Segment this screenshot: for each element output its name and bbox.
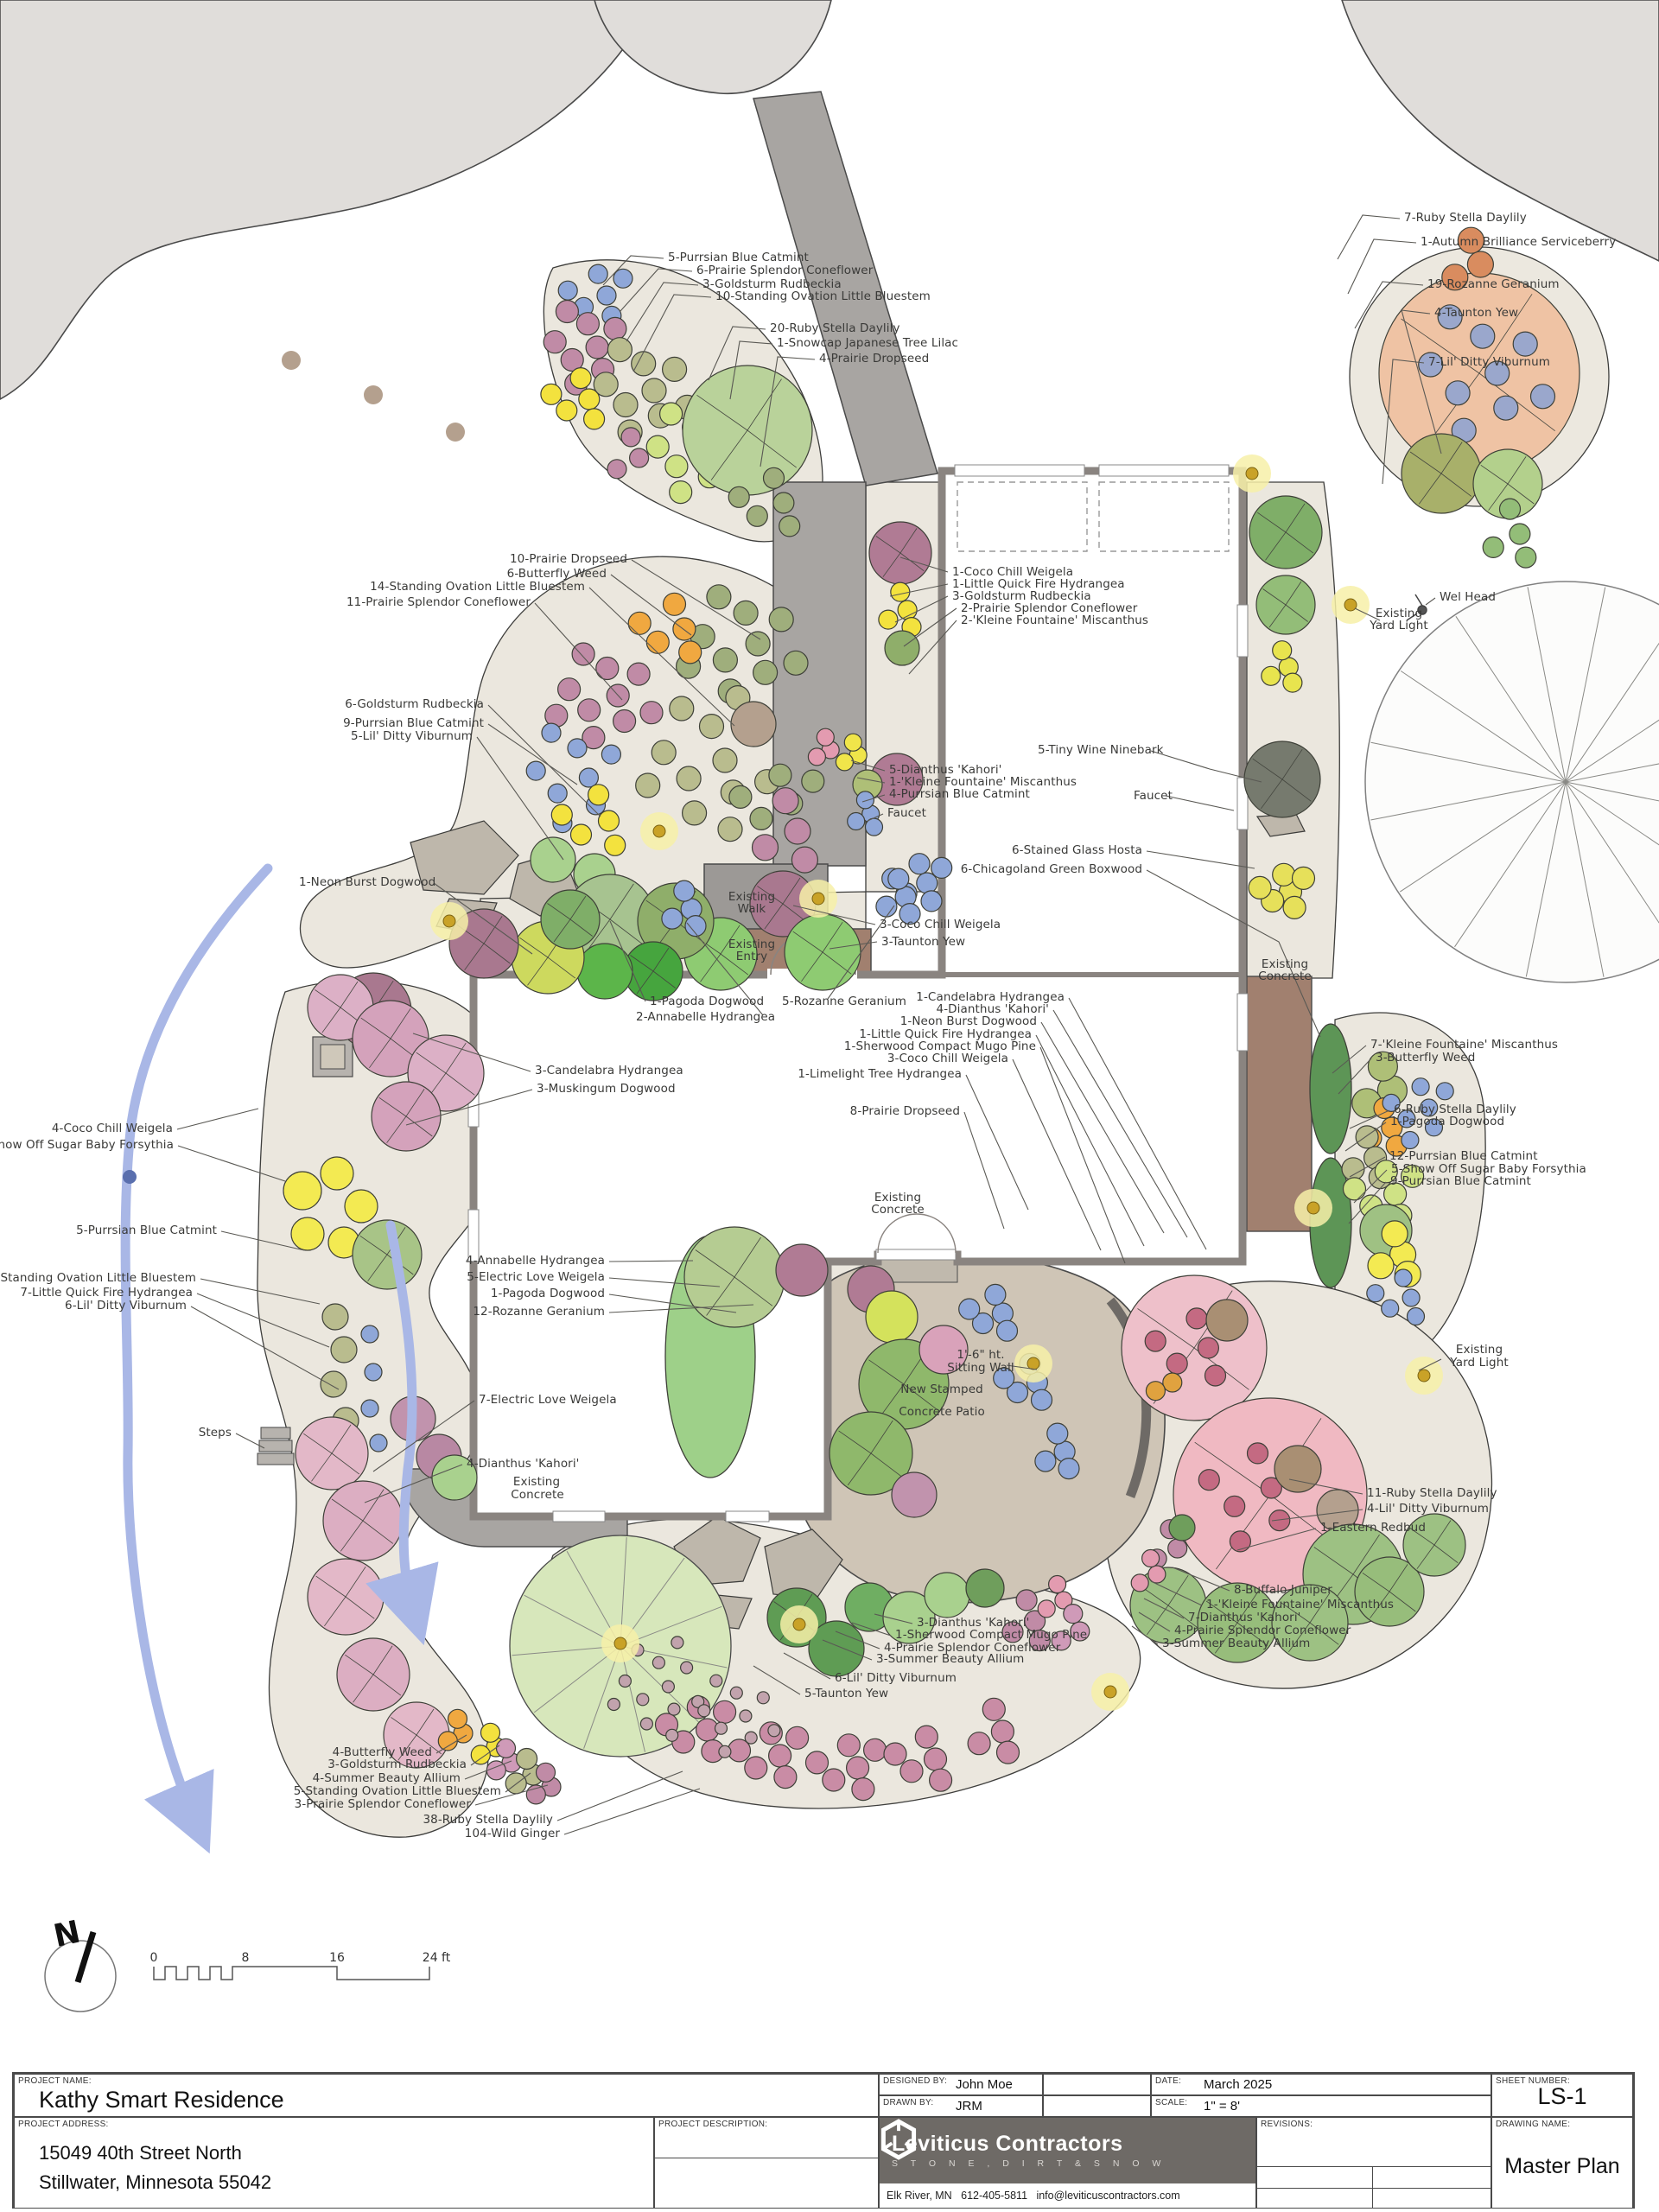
plant-symbol — [1274, 1446, 1321, 1492]
plant-symbol — [584, 409, 605, 429]
plan-label: Yard Light — [1449, 1356, 1509, 1370]
title-block: PROJECT NAME: Kathy Smart Residence PROJ… — [12, 2072, 1635, 2209]
plan-label: 4-Prairie Splendor Coneflower — [1174, 1624, 1351, 1637]
plant-symbol — [652, 741, 676, 765]
plant-symbol — [1510, 524, 1530, 544]
plan-label: Entry — [736, 950, 767, 963]
plan-label: Faucet — [887, 806, 926, 820]
plan-label: 4-Summer Beauty Allium — [313, 1771, 461, 1785]
plant-symbol — [1205, 1365, 1226, 1386]
plant-symbol — [1224, 1496, 1245, 1516]
plant-symbol — [670, 481, 692, 504]
plan-label: 19-Rozanne Geranium — [1427, 277, 1560, 291]
plan-label: 5-Show Off Sugar Baby Forsythia — [0, 1138, 174, 1152]
drawn-by-cell: DRAWN BY: JRM — [879, 2095, 1043, 2117]
large-existing-tree — [1365, 582, 1659, 982]
plan-label: Sitting Wall — [947, 1361, 1014, 1375]
plant-symbol — [925, 1748, 947, 1770]
plant-symbol — [517, 1749, 537, 1770]
plan-label: 4-Lil' Ditty Viburnum — [1367, 1502, 1489, 1516]
plant-symbol — [844, 734, 861, 751]
yard-light — [1246, 467, 1258, 480]
plant-symbol — [1148, 1566, 1166, 1583]
plant-symbol — [768, 1725, 780, 1737]
plant-symbol — [1273, 641, 1292, 660]
plan-label: Yard Light — [1369, 619, 1428, 632]
logo-cell: Leviticus Contractors S T O N E , D I R … — [879, 2117, 1256, 2209]
plant-symbol — [283, 1172, 321, 1210]
yard-light — [1344, 599, 1357, 611]
plant-symbol — [497, 1738, 516, 1758]
plan-label: 3-Coco Chill Weigela — [887, 1052, 1008, 1065]
plant-symbol — [668, 1703, 680, 1715]
leader-line — [1426, 598, 1435, 605]
plant-symbol — [1206, 1300, 1248, 1341]
plant-symbol — [791, 847, 817, 873]
plant-symbol — [700, 715, 724, 739]
drawn-by-label: DRAWN BY: — [883, 2098, 933, 2107]
plan-label: 3-Coco Chill Weigela — [880, 918, 1001, 931]
drawing-name-cell: DRAWING NAME: Master Plan — [1491, 2117, 1633, 2209]
scale-label: SCALE: — [1155, 2098, 1187, 2107]
plan-label: 6-Chicagoland Green Boxwood — [961, 862, 1142, 876]
plant-symbol — [365, 1363, 382, 1381]
plan-label: 7-Electric Love Weigela — [479, 1393, 617, 1407]
plan-label: 3-Butterfly Weed — [1376, 1051, 1475, 1065]
plan-label: New Stamped — [900, 1382, 983, 1396]
plant-symbol — [613, 393, 638, 417]
plant-symbol — [1283, 896, 1306, 918]
plant-symbol — [605, 835, 626, 855]
plant-symbol — [505, 1773, 526, 1794]
yard-light — [443, 915, 455, 927]
project-address-label: PROJECT ADDRESS: — [18, 2120, 109, 2129]
plan-label: 3-Summer Beauty Allium — [1162, 1637, 1310, 1650]
plant-symbol — [772, 788, 798, 814]
drainage-node — [123, 1170, 137, 1184]
plant-symbol — [847, 1757, 869, 1779]
designed-by-cell: DESIGNED BY: John Moe — [879, 2074, 1043, 2095]
plant-symbol — [640, 702, 663, 724]
steps — [257, 1427, 294, 1465]
leader-line — [564, 1789, 700, 1834]
plant-symbol — [718, 817, 742, 842]
plan-label: 4-Coco Chill Weigela — [52, 1122, 173, 1135]
plan-label: 4-Purrsian Blue Catmint — [889, 787, 1030, 801]
north-letter: N — [51, 1915, 84, 1955]
plant-symbol — [734, 601, 758, 625]
plant-symbol — [1367, 1285, 1384, 1302]
plant-symbol — [769, 607, 793, 632]
logo-contact: Elk River, MN 612-405-5811 info@leviticu… — [880, 2184, 1255, 2208]
project-address-line2: Stillwater, Minnesota 55042 — [39, 2171, 271, 2194]
plan-label: 1-'Kleine Fountaine' Miscanthus — [1206, 1598, 1394, 1611]
plan-label: 10-Prairie Dropseed — [510, 552, 627, 566]
plant-symbol — [915, 1726, 938, 1748]
plant-symbol — [848, 813, 865, 830]
plant-symbol — [1035, 1451, 1056, 1471]
yard-light — [1418, 1370, 1430, 1382]
plan-label: 1-Snowcap Japanese Tree Lilac — [777, 336, 958, 350]
plant-symbol — [1471, 324, 1495, 348]
plant-symbol — [322, 1304, 348, 1330]
plant-symbol — [1494, 396, 1518, 420]
plan-label: 1-Pagoda Dogwood — [491, 1287, 605, 1300]
plant-symbol — [646, 631, 669, 653]
plan-label: Steps — [199, 1426, 232, 1440]
plan-label: 4-Prairie Dropseed — [819, 352, 929, 365]
plan-label: 10-Standing Ovation Little Bluestem — [715, 289, 931, 303]
plant-symbol — [991, 1720, 1014, 1743]
sheet-number-value: LS-1 — [1492, 2083, 1632, 2110]
plant-symbol — [784, 651, 808, 675]
description-divider — [655, 2158, 878, 2158]
plant-symbol — [710, 1675, 722, 1687]
plant-symbol — [1408, 1308, 1425, 1325]
plant-symbol — [1145, 1331, 1166, 1351]
plant-symbol — [1249, 876, 1271, 899]
plan-label: 4-Dianthus 'Kahori' — [467, 1457, 580, 1471]
plant-symbol — [808, 748, 825, 766]
plant-symbol — [1273, 863, 1295, 886]
plan-label: 5-Taunton Yew — [804, 1687, 888, 1700]
plant-symbol — [1368, 1253, 1394, 1279]
plant-symbol — [1402, 1289, 1420, 1306]
project-description-label: PROJECT DESCRIPTION: — [658, 2120, 767, 2129]
plan-label: 3-Prairie Splendor Coneflower — [295, 1797, 472, 1811]
plant-symbol — [1513, 332, 1537, 356]
scale-bar: 081624 ft — [150, 1951, 451, 1980]
plan-label: 1'-6" ht. — [957, 1348, 1004, 1362]
plan-label: 5-Tiny Wine Ninebark — [1038, 743, 1164, 757]
driveway-top-center — [594, 0, 831, 93]
plant-symbol — [572, 643, 594, 665]
plant-symbol — [568, 739, 587, 758]
plan-label: 5-Electric Love Weigela — [467, 1270, 605, 1284]
plant-symbol — [1032, 1389, 1052, 1410]
plant-symbol — [683, 801, 707, 825]
plant-symbol — [866, 1291, 918, 1343]
plant-symbol — [997, 1741, 1020, 1764]
plant-symbol — [900, 1760, 923, 1783]
plant-symbol — [556, 301, 578, 323]
scale-tick-label: 8 — [242, 1951, 250, 1965]
garage-door-1 — [955, 465, 1084, 476]
plant-symbol — [438, 1732, 457, 1751]
plan-label: 1-Pagoda Dogwood — [1390, 1115, 1504, 1128]
project-name-value: Kathy Smart Residence — [39, 2087, 284, 2113]
drawing-sheet: 5-Purrsian Blue Catmint6-Prairie Splendo… — [0, 0, 1659, 2212]
plant-symbol — [604, 317, 626, 340]
plant-symbol — [558, 281, 577, 300]
plant-symbol — [740, 1710, 752, 1722]
designed-by-label: DESIGNED BY: — [883, 2076, 947, 2086]
plant-symbol — [613, 710, 636, 733]
plant-symbol — [576, 313, 599, 335]
plant-symbol — [753, 835, 779, 861]
plant-symbol — [885, 631, 919, 665]
plant-symbol — [879, 610, 898, 629]
plant-symbol — [1198, 1470, 1219, 1491]
plant-symbol — [785, 818, 810, 844]
plant-symbol — [599, 810, 620, 831]
plant-symbol — [884, 1743, 906, 1765]
plan-label: 7-Lil' Ditty Viburnum — [1428, 355, 1550, 369]
date-value: March 2025 — [1204, 2077, 1272, 2092]
plant-symbol — [779, 516, 800, 537]
plant-symbol — [714, 1700, 736, 1723]
plant-symbol — [541, 384, 562, 404]
plant-symbol — [745, 1757, 767, 1779]
plan-label: 1-Pagoda Dogwood — [650, 995, 764, 1008]
plant-symbol — [1047, 1423, 1068, 1444]
plant-symbol — [1382, 1300, 1399, 1317]
plant-symbol — [1230, 1531, 1250, 1552]
plant-symbol — [1516, 547, 1536, 568]
plant-symbol — [636, 773, 660, 798]
plant-symbol — [698, 1705, 710, 1717]
plant-symbol — [1168, 1539, 1187, 1558]
plan-label: Concrete — [1258, 969, 1312, 983]
plan-label: 9-Purrsian Blue Catmint — [343, 716, 484, 730]
plant-symbol — [673, 618, 696, 640]
plan-label: 2-Annabelle Hydrangea — [636, 1010, 775, 1024]
plan-label: Wel Head — [1440, 590, 1496, 604]
plant-symbol — [486, 1761, 505, 1780]
plan-label: 6-Standing Ovation Little Bluestem — [0, 1271, 196, 1285]
plan-label: Faucet — [1134, 789, 1173, 803]
yard-light — [793, 1618, 805, 1630]
plan-label: 6-Goldsturm Rudbeckia — [345, 697, 484, 711]
plan-label: 1-Autumn Brilliance Serviceberry — [1421, 235, 1616, 249]
plan-label: 5-Rozanne Geranium — [782, 995, 906, 1008]
yard-light — [614, 1637, 626, 1649]
plant-symbol — [664, 593, 686, 615]
plant-symbol — [671, 1637, 683, 1649]
plant-symbol — [627, 663, 650, 685]
plant-symbol — [1395, 1269, 1412, 1287]
plant-symbol — [542, 723, 561, 742]
plan-label: 20-Ruby Stella Daylily — [770, 321, 900, 335]
plant-symbol — [601, 745, 620, 764]
plan-label: 4-Taunton Yew — [1434, 306, 1518, 320]
plant-symbol — [1166, 1353, 1187, 1374]
plan-label: 7-Little Quick Fire Hydrangea — [20, 1286, 193, 1300]
plant-symbol — [628, 612, 651, 634]
plant-symbol — [729, 785, 752, 808]
plant-symbol — [852, 1778, 874, 1801]
plant-symbol — [607, 338, 632, 362]
plant-symbol — [713, 648, 737, 672]
plant-symbol — [898, 601, 917, 620]
project-name-label: PROJECT NAME: — [18, 2076, 92, 2086]
plant-symbol — [448, 1709, 467, 1728]
plan-label: Existing — [513, 1475, 560, 1489]
plant-symbol — [652, 1656, 664, 1669]
plant-symbol — [630, 448, 649, 467]
plant-symbol — [556, 400, 577, 421]
drawn-by-value: JRM — [956, 2099, 982, 2113]
plant-symbol — [588, 785, 609, 805]
plant-symbol — [1483, 537, 1503, 557]
plant-symbol — [571, 824, 592, 845]
plan-label: 6-Lil' Ditty Viburnum — [835, 1671, 957, 1685]
plant-symbol — [594, 372, 618, 397]
plan-label: 5-Standing Ovation Little Bluestem — [294, 1784, 501, 1798]
date-cell: DATE: March 2025 — [1151, 2074, 1491, 2095]
plan-label: 7-Ruby Stella Daylily — [1404, 211, 1527, 225]
plan-label: 8-Prairie Dropseed — [850, 1104, 960, 1118]
plan-label: Walk — [738, 902, 766, 916]
revisions-cell: REVISIONS: — [1256, 2117, 1491, 2209]
plan-label: Concrete — [511, 1488, 564, 1502]
plant-symbol — [966, 1569, 1004, 1607]
plant-symbol — [361, 1325, 378, 1343]
plant-symbol — [750, 807, 772, 829]
plant-symbol — [570, 368, 591, 389]
plant-symbol — [291, 1217, 324, 1250]
plant-symbol — [632, 352, 656, 376]
designed-by-value: John Moe — [956, 2077, 1013, 2092]
plan-label: 1-Sherwood Compact Mugo Pine — [895, 1628, 1087, 1642]
drawing-name-label: DRAWING NAME: — [1496, 2120, 1570, 2129]
plant-symbol — [1169, 1515, 1195, 1541]
plant-symbol — [674, 880, 695, 901]
plan-label: 6-Prairie Splendor Coneflower — [696, 264, 874, 277]
plant-symbol — [637, 1694, 649, 1706]
plant-symbol — [719, 1745, 731, 1758]
scale-tick-label: 24 ft — [423, 1951, 451, 1965]
plant-symbol — [543, 331, 566, 353]
plan-label: 12-Rozanne Geranium — [473, 1305, 605, 1319]
plant-symbol — [1142, 1550, 1160, 1567]
plant-symbol — [531, 837, 575, 882]
plant-symbol — [1262, 666, 1281, 685]
plan-label: 1-Neon Burst Dogwood — [900, 1014, 1037, 1028]
plant-symbol — [586, 336, 608, 359]
plant-symbol — [1016, 1590, 1037, 1611]
plant-symbol — [681, 1662, 693, 1674]
plant-symbol — [578, 699, 601, 721]
plant-symbol — [537, 1763, 556, 1782]
plant-symbol — [864, 1738, 887, 1761]
plant-symbol — [1146, 1382, 1165, 1401]
plan-label: 7-Dianthus 'Kahori' — [1188, 1611, 1301, 1624]
plant-symbol — [596, 658, 619, 680]
plan-label: 3-Taunton Yew — [881, 935, 965, 949]
plan-label: Concrete Patio — [899, 1405, 985, 1419]
plant-symbol — [662, 908, 683, 929]
plan-label: 5-Lil' Ditty Viburnum — [351, 729, 473, 743]
empty-cell-1 — [1043, 2074, 1151, 2095]
plant-symbol — [773, 493, 794, 513]
plan-label: 3-Candelabra Hydrangea — [535, 1064, 683, 1077]
plan-label: 11-Ruby Stella Daylily — [1367, 1486, 1497, 1500]
plant-symbol — [666, 1729, 678, 1741]
plant-symbol — [985, 1284, 1006, 1305]
plan-label: 1-Neon Burst Dogwood — [299, 875, 435, 889]
drainage-arrow-west — [125, 868, 268, 1819]
logo-band: Leviticus Contractors S T O N E , D I R … — [880, 2118, 1255, 2183]
plant-symbol — [345, 1190, 378, 1223]
plant-symbol — [856, 791, 874, 809]
plant-symbol — [776, 1244, 828, 1296]
plant-symbol — [1446, 381, 1470, 405]
plant-symbol — [677, 766, 701, 791]
plant-symbol — [931, 857, 952, 878]
plan-label: 3-Goldsturm Rudbeckia — [327, 1758, 467, 1771]
plant-symbol — [1038, 1600, 1055, 1618]
project-address-line1: 15049 40th Street North — [39, 2142, 242, 2164]
plant-symbol — [1049, 1576, 1066, 1593]
plant-symbol — [1283, 673, 1302, 692]
sheet-number-cell: SHEET NUMBER: LS-1 — [1491, 2074, 1633, 2117]
plant-symbol — [925, 1573, 969, 1618]
plant-symbol — [621, 428, 640, 447]
plant-symbol — [361, 1400, 378, 1417]
plant-symbol — [892, 1472, 937, 1517]
plant-symbol — [774, 1766, 797, 1789]
north-arrow: N — [45, 1915, 116, 2012]
plant-symbol — [888, 868, 909, 889]
plant-symbol — [1500, 499, 1521, 519]
project-address-cell: PROJECT ADDRESS: 15049 40th Street North… — [14, 2117, 654, 2209]
drawing-name-value: Master Plan — [1492, 2154, 1632, 2179]
plant-symbol — [707, 585, 731, 609]
plant-symbol — [1058, 1459, 1079, 1479]
plant-symbol — [1402, 1132, 1419, 1149]
plant-symbol — [321, 1157, 353, 1190]
plan-label: 7-'Kleine Fountaine' Miscanthus — [1370, 1038, 1558, 1052]
scale-value: 1" = 8' — [1204, 2099, 1240, 2113]
boxwood-column-1 — [1310, 1024, 1351, 1154]
plant-symbol — [1531, 385, 1555, 409]
plant-symbol — [728, 486, 749, 507]
plant-symbol — [1436, 1083, 1453, 1100]
plant-symbol — [715, 1722, 728, 1734]
plan-label: 6-Butterfly Weed — [507, 567, 607, 581]
plan-label: 5-Purrsian Blue Catmint — [668, 251, 809, 264]
plant-symbol — [660, 403, 683, 425]
patio-door-gap — [876, 1249, 956, 1260]
plant-symbol — [1186, 1308, 1207, 1329]
plant-symbol — [1248, 1443, 1268, 1464]
plant-symbol — [1344, 1178, 1366, 1200]
plant-symbol — [1356, 1126, 1378, 1148]
logo-tagline: S T O N E , D I R T & S N O W — [892, 2158, 1166, 2169]
scale-tick-label: 0 — [150, 1951, 158, 1965]
plant-symbol — [679, 641, 702, 664]
yard-light — [1104, 1686, 1116, 1698]
plant-symbol — [642, 378, 666, 403]
revisions-label: REVISIONS: — [1261, 2120, 1313, 2129]
plant-symbol — [597, 286, 616, 305]
plant-symbol — [670, 696, 694, 721]
plant-symbol — [613, 269, 632, 288]
plan-label: 38-Ruby Stella Daylily — [423, 1813, 553, 1827]
garage-door-2 — [1099, 465, 1229, 476]
plan-label: 4-Annabelle Hydrangea — [466, 1254, 605, 1268]
logo-name: Leviticus Contractors — [892, 2133, 1166, 2155]
plant-symbol — [769, 764, 791, 786]
scale-cell: SCALE: 1" = 8' — [1151, 2095, 1491, 2117]
leader-line — [1338, 215, 1400, 259]
boulders — [282, 351, 465, 442]
plan-label: 9-Purrsian Blue Catmint — [1390, 1174, 1531, 1188]
plant-symbol — [1131, 1574, 1148, 1592]
plant-symbol — [891, 582, 910, 601]
plant-symbol — [646, 435, 669, 458]
